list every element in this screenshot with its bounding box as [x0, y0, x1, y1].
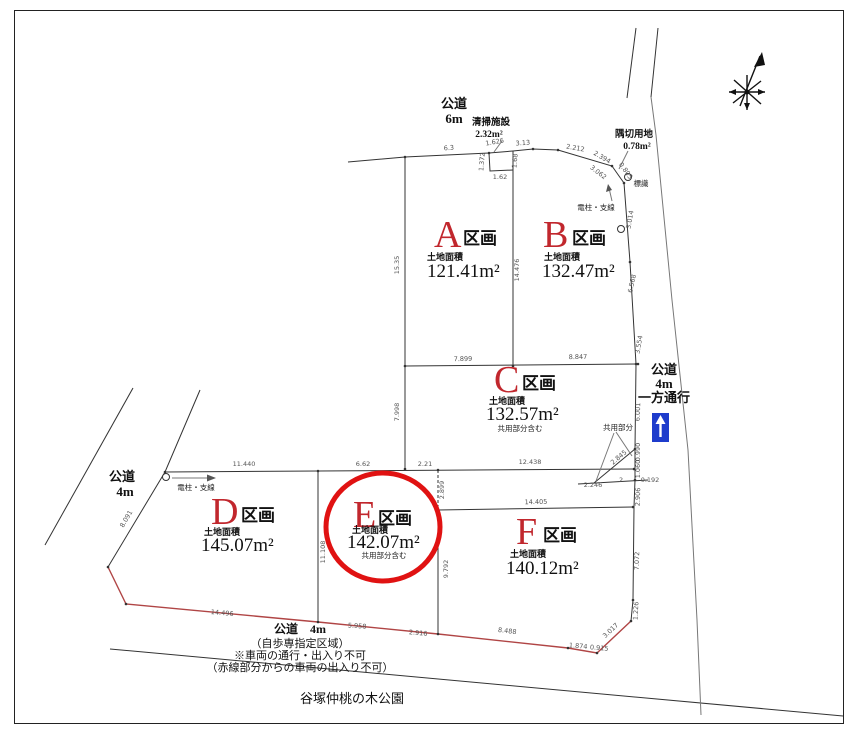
- dimension-label: 2.21: [418, 460, 432, 468]
- dimension-label: 1.874: [569, 641, 588, 651]
- plot-c-letter: C: [494, 359, 519, 401]
- road-bottom-note-1: （自歩専指定区域）: [251, 636, 350, 650]
- plot-b-area: 132.47m²: [542, 261, 615, 282]
- road-left-name: 公道: [109, 469, 135, 484]
- dimension-label: 1.62: [493, 173, 507, 181]
- dimension-label: 0.915: [590, 643, 609, 653]
- road-bottom-note-2: ※車両の通行・出入り不可: [234, 648, 366, 662]
- dimension-label: 5.958: [348, 621, 367, 630]
- plot-a-letter: A: [434, 214, 462, 256]
- drawing-border: [15, 11, 844, 724]
- dimension-label: 0.192: [641, 476, 660, 484]
- shared-section-label: 共用部分: [603, 422, 633, 432]
- dimension-label: 15.35: [393, 256, 401, 275]
- pole-marker-icon: [163, 474, 170, 481]
- plot-a-area: 121.41m²: [427, 261, 500, 282]
- dimension-label: 7.998: [393, 403, 401, 422]
- road-top-width: 6m: [445, 111, 463, 126]
- dimension-label: 0.990: [634, 443, 642, 462]
- road-bottom-name: 公道 4m: [274, 621, 326, 636]
- sign-marker-label: 標識: [634, 178, 649, 188]
- corner-lot-area: 0.78m²: [623, 142, 651, 152]
- road-top-name: 公道: [441, 96, 467, 111]
- plot-d-suffix: 区画: [241, 506, 275, 525]
- site-plan-page: 公道 6m 公道 4m 公道 4m 一方通行 清掃施設 2.32m² 隅切用地 …: [0, 0, 858, 735]
- pole-marker-icon: [618, 226, 625, 233]
- dimension-label: 7.072: [633, 551, 642, 570]
- dimension-label: 1.226: [632, 601, 641, 620]
- park-name-label: 谷塚仲桃の木公園: [300, 691, 404, 706]
- dimension-label: 2.916: [409, 628, 428, 638]
- plot-e-note: 共用部分含む: [362, 550, 407, 560]
- dimension-label: 14.405: [525, 498, 548, 506]
- cleaning-facility-name: 清掃施設: [472, 116, 511, 128]
- dimension-label: 9.792: [442, 560, 450, 579]
- dimension-label: 6.001: [634, 402, 643, 421]
- dimension-label: 11.440: [233, 460, 256, 468]
- dimension-label: 3.13: [515, 139, 530, 148]
- plot-c-area: 132.57m²: [486, 404, 559, 425]
- plot-a-suffix: 区画: [463, 229, 497, 248]
- dimension-label: 1.372: [477, 152, 487, 171]
- plot-f-suffix: 区画: [543, 526, 577, 545]
- dimension-label: 6.62: [356, 460, 370, 468]
- road-right-width: 4m: [655, 376, 673, 391]
- plot-d-area: 145.07m²: [201, 535, 274, 556]
- utility-pole-right-label: 電柱・支線: [577, 202, 615, 212]
- road-right-name: 公道: [651, 362, 677, 377]
- dimension-label: 12.438: [519, 458, 542, 466]
- corner-lot-name: 隅切用地: [615, 128, 654, 140]
- dimension-label: 1.68: [510, 153, 519, 168]
- road-right-oneway-label: 一方通行: [638, 390, 690, 405]
- plot-e-area: 142.07m²: [347, 532, 420, 553]
- dimension-label: 7.899: [454, 355, 473, 363]
- road-left-width: 4m: [116, 484, 134, 499]
- plot-c-note: 共用部分含む: [498, 423, 543, 433]
- plot-c-suffix: 区画: [522, 374, 556, 393]
- plot-b-letter: B: [543, 214, 568, 256]
- dimension-label: 11.108: [319, 541, 327, 564]
- plot-b-suffix: 区画: [572, 229, 606, 248]
- plot-f-area: 140.12m²: [506, 558, 579, 579]
- site-plan-drawing: 公道 6m 公道 4m 公道 4m 一方通行 清掃施設 2.32m² 隅切用地 …: [0, 0, 858, 735]
- plot-f-letter: F: [516, 511, 537, 553]
- dimension-label: 2.246: [584, 481, 603, 489]
- dimension-label: 6.3: [443, 144, 454, 153]
- dimension-label: 2.899: [438, 481, 446, 500]
- road-bottom-note-3: （赤線部分からの車両の出入り不可）: [207, 660, 394, 674]
- dimension-label: 8.847: [569, 353, 588, 361]
- one-way-sign-icon: [652, 413, 669, 442]
- utility-pole-left-label: 電柱・支線: [177, 482, 215, 492]
- dimension-label: 2: [619, 476, 623, 484]
- dimension-label: 2.906: [634, 487, 643, 506]
- dimension-label: 14.476: [513, 259, 521, 282]
